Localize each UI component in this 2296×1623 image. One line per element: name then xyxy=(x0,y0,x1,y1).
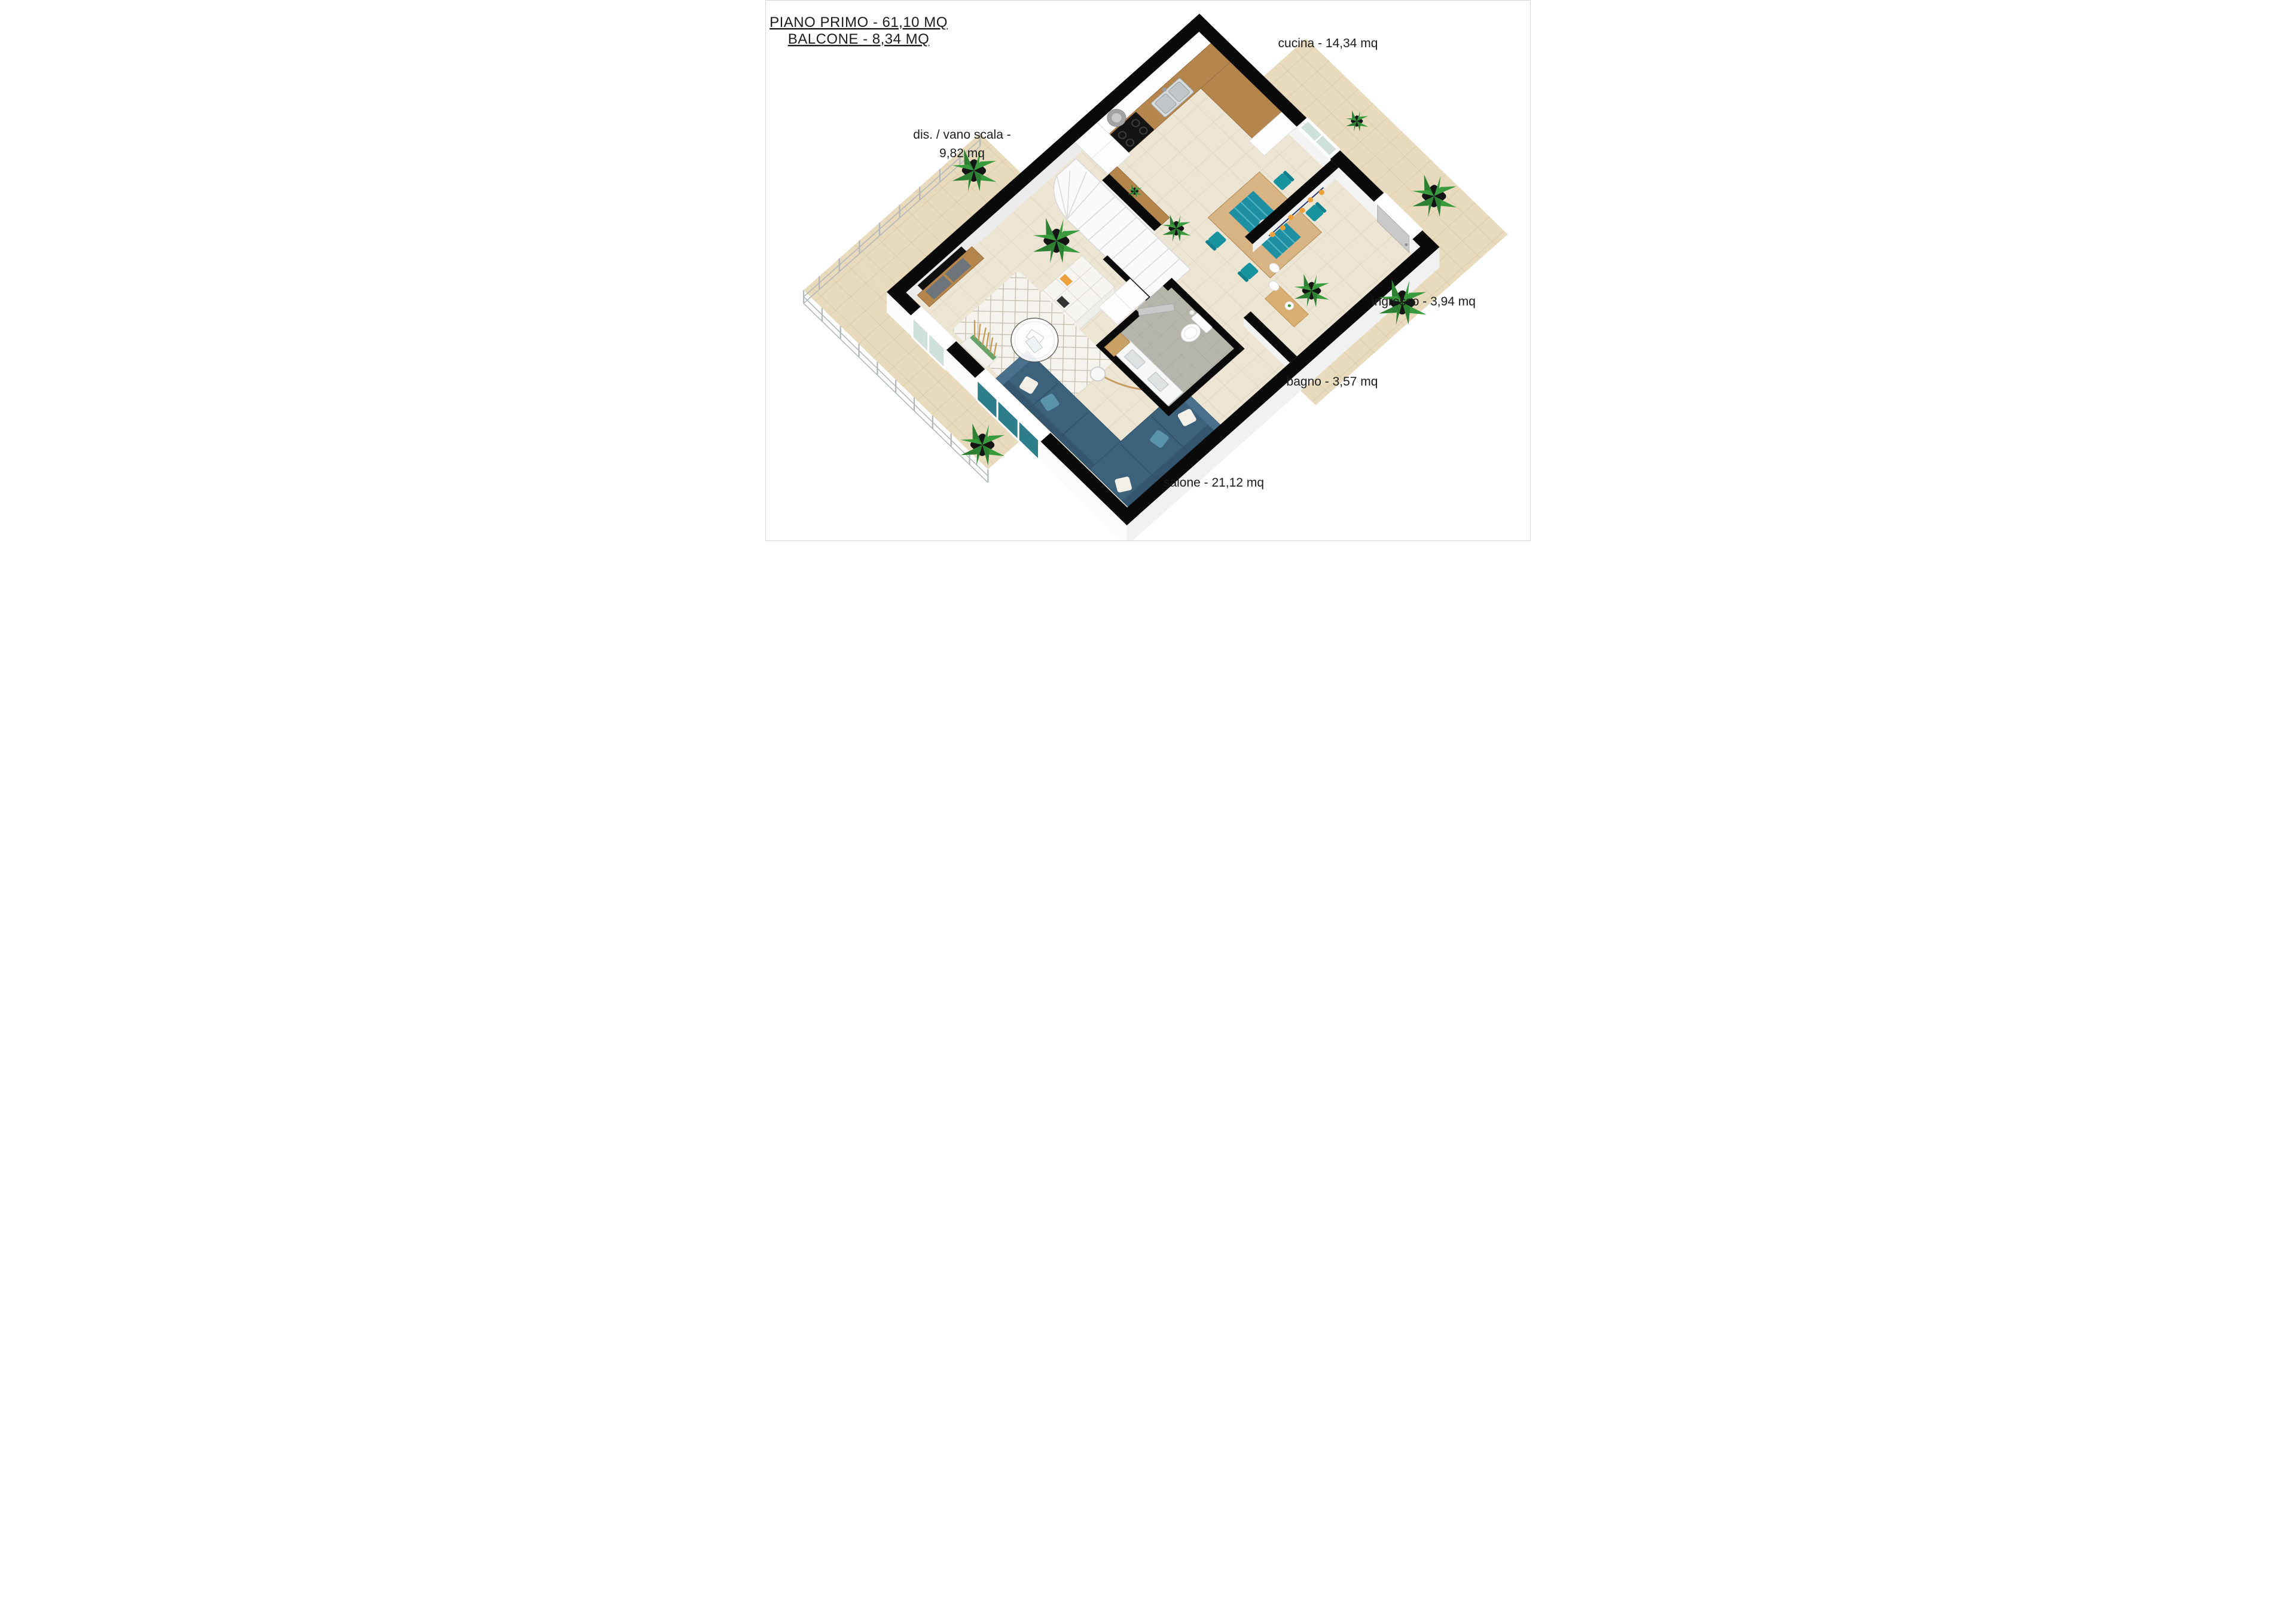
label-vano-scala-line1: dis. / vano scala - xyxy=(913,128,1010,142)
page-subtitle: BALCONE - 8,34 MQ xyxy=(788,31,930,47)
label-bagno: bagno - 3,57 mq xyxy=(1287,375,1378,389)
label-vano-scala-line2: 9,82 mq xyxy=(939,146,985,160)
floor-plan-page: PIANO PRIMO - 61,10 MQ BALCONE - 8,34 MQ… xyxy=(765,0,1531,541)
label-ingresso: ingresso - 3,94 mq xyxy=(1372,295,1476,308)
floor-plan-canvas: PIANO PRIMO - 61,10 MQ BALCONE - 8,34 MQ… xyxy=(766,1,1530,540)
label-cucina: cucina - 14,34 mq xyxy=(1278,36,1378,50)
label-salone: salone - 21,12 mq xyxy=(1164,476,1264,490)
page-title: PIANO PRIMO - 61,10 MQ xyxy=(770,14,948,30)
